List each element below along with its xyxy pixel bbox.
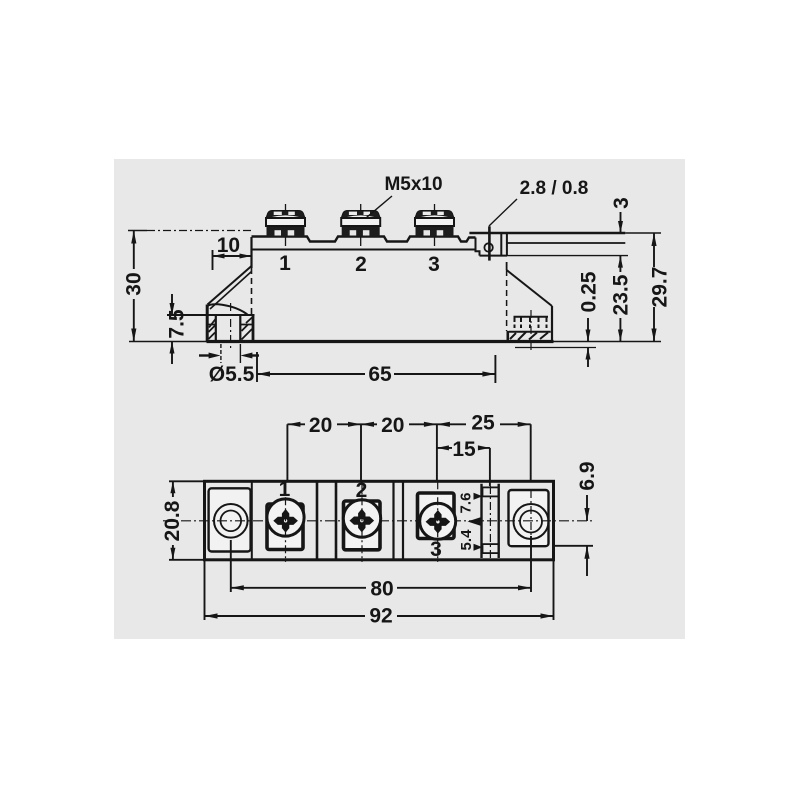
svg-text:3: 3 bbox=[430, 538, 442, 561]
svg-text:6.9: 6.9 bbox=[576, 461, 599, 490]
svg-text:92: 92 bbox=[369, 605, 392, 628]
svg-text:2.8 / 0.8: 2.8 / 0.8 bbox=[520, 178, 589, 199]
svg-text:5.4: 5.4 bbox=[458, 529, 475, 551]
svg-text:23.5: 23.5 bbox=[610, 274, 633, 315]
svg-text:20: 20 bbox=[381, 414, 404, 437]
svg-text:Ø5.5: Ø5.5 bbox=[209, 363, 255, 386]
svg-text:65: 65 bbox=[368, 363, 392, 386]
svg-text:10: 10 bbox=[217, 234, 240, 257]
svg-text:30: 30 bbox=[122, 272, 145, 295]
svg-text:3: 3 bbox=[610, 197, 633, 209]
svg-text:3: 3 bbox=[428, 253, 440, 276]
svg-text:15: 15 bbox=[452, 438, 476, 461]
svg-text:20: 20 bbox=[309, 414, 332, 437]
svg-text:29.7: 29.7 bbox=[649, 267, 672, 308]
svg-text:7.6: 7.6 bbox=[458, 493, 475, 514]
svg-text:80: 80 bbox=[370, 578, 393, 601]
svg-text:1: 1 bbox=[279, 478, 291, 501]
svg-text:25: 25 bbox=[471, 412, 495, 435]
svg-text:2: 2 bbox=[356, 479, 368, 502]
svg-text:20.8: 20.8 bbox=[161, 500, 184, 541]
svg-text:2: 2 bbox=[355, 253, 367, 276]
svg-text:7.5: 7.5 bbox=[166, 309, 189, 339]
svg-text:0.25: 0.25 bbox=[578, 271, 601, 312]
svg-text:M5x10: M5x10 bbox=[384, 174, 442, 195]
svg-text:1: 1 bbox=[279, 252, 291, 275]
